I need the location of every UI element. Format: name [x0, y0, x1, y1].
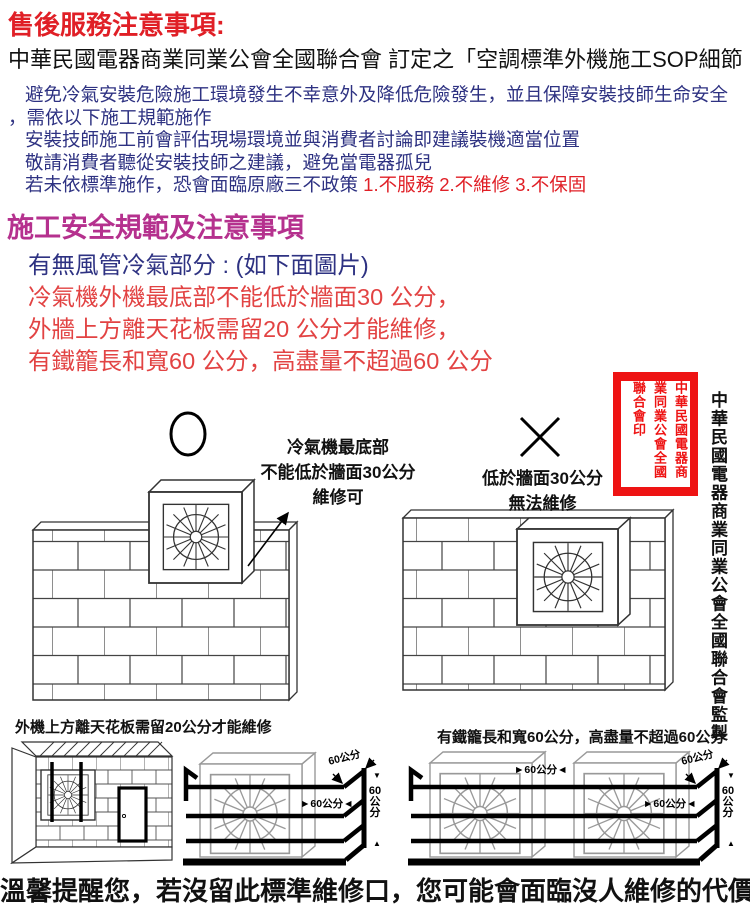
policy-prefix: 若未依標準施作，恐會面臨原廠三不政策	[25, 174, 363, 195]
bad-install-diagram	[403, 510, 673, 690]
section-subheading: 有無風管冷氣部分 : (如下面圖片)	[28, 246, 369, 280]
arrow-up-icon: ▲	[727, 839, 735, 848]
dim-label-60cm-vertical: 60公分	[721, 786, 735, 819]
policy-warning: 1.不服務 2.不維修 3.不保固	[363, 174, 586, 195]
policy-line: 若未依標準施作，恐會面臨原廠三不政策 1.不服務 2.不維修 3.不保固	[8, 174, 728, 197]
wrong-mark-icon	[521, 418, 559, 456]
dim-label-60cm: ►60公分◄	[643, 796, 697, 811]
bad-install-caption: 低於牆面30公分 無法維修	[460, 466, 625, 516]
footer-warning: 溫馨提醒您，若沒留此標準維修口，您可能會面臨沒人維修的代價	[0, 871, 750, 908]
correct-mark-icon	[171, 413, 205, 455]
side-vertical-caption: 中華民國電器商業同業公會全國聯合會監製	[705, 391, 730, 751]
cage-size-caption: 有鐵籠長和寬60公分，高盡量不超過60公分	[437, 726, 725, 747]
dim-label-60cm: ►60公分◄	[300, 796, 354, 811]
page-subtitle: 中華民國電器商業同業公會全國聯合會 訂定之「空調標準外機施工SOP細節	[8, 42, 743, 74]
intro-line: 敬請消費者聽從安裝技師之建議，避免當電器孤兒	[8, 152, 728, 175]
arrow-left-icon: ◄	[557, 764, 567, 776]
arrow-down-icon: ▼	[373, 771, 381, 780]
page-title: 售後服務注意事項:	[8, 5, 225, 42]
intro-line: 避免冷氣安裝危險施工環境發生不幸意外及降低危險發生，並且保障安裝技師生命安全	[8, 84, 728, 107]
intro-line: ，需依以下施工規範施作	[8, 107, 728, 130]
intro-paragraph: 避免冷氣安裝危險施工環境發生不幸意外及降低危險發生，並且保障安裝技師生命安全 ，…	[8, 84, 728, 197]
association-stamp: 中華民國電器商業同業公會全國聯合會印	[613, 372, 698, 496]
stamp-seal-text: 中華民國電器商業同業公會全國聯合會印	[621, 381, 690, 487]
arrow-right-icon: ►	[514, 764, 524, 776]
intro-line: 安裝技師施工前會評估現場環境並與消費者討論即建議裝機適當位置	[8, 129, 728, 152]
good-install-diagram	[33, 480, 297, 700]
arrow-up-icon: ▲	[373, 839, 381, 848]
document-page: 售後服務注意事項: 中華民國電器商業同業公會全國聯合會 訂定之「空調標準外機施工…	[0, 0, 750, 915]
arrow-right-icon: ►	[300, 798, 310, 810]
section-heading: 施工安全規範及注意事項	[7, 206, 304, 245]
good-install-caption: 冷氣機最底部 不能低於牆面30公分 維修可	[253, 435, 423, 510]
arrow-left-icon: ◄	[343, 798, 353, 810]
arrow-right-icon: ►	[643, 798, 653, 810]
arrow-down-icon: ▼	[727, 771, 735, 780]
rule-line: 冷氣機外機最底部不能低於牆面30 公分，	[28, 278, 460, 312]
rule-line: 外牆上方離天花板需留20 公分才能維修，	[28, 310, 460, 344]
ceiling-clearance-caption: 外機上方離天花板需留20公分才能維修	[15, 716, 272, 737]
arrow-left-icon: ◄	[686, 798, 696, 810]
dim-label-60cm: ►60公分◄	[514, 762, 568, 777]
rule-line: 有鐵籠長和寬60 公分，高盡量不超過60 公分	[28, 342, 493, 376]
ceiling-clearance-diagram	[12, 742, 172, 863]
dim-label-60cm-vertical: 60公分	[368, 786, 382, 819]
